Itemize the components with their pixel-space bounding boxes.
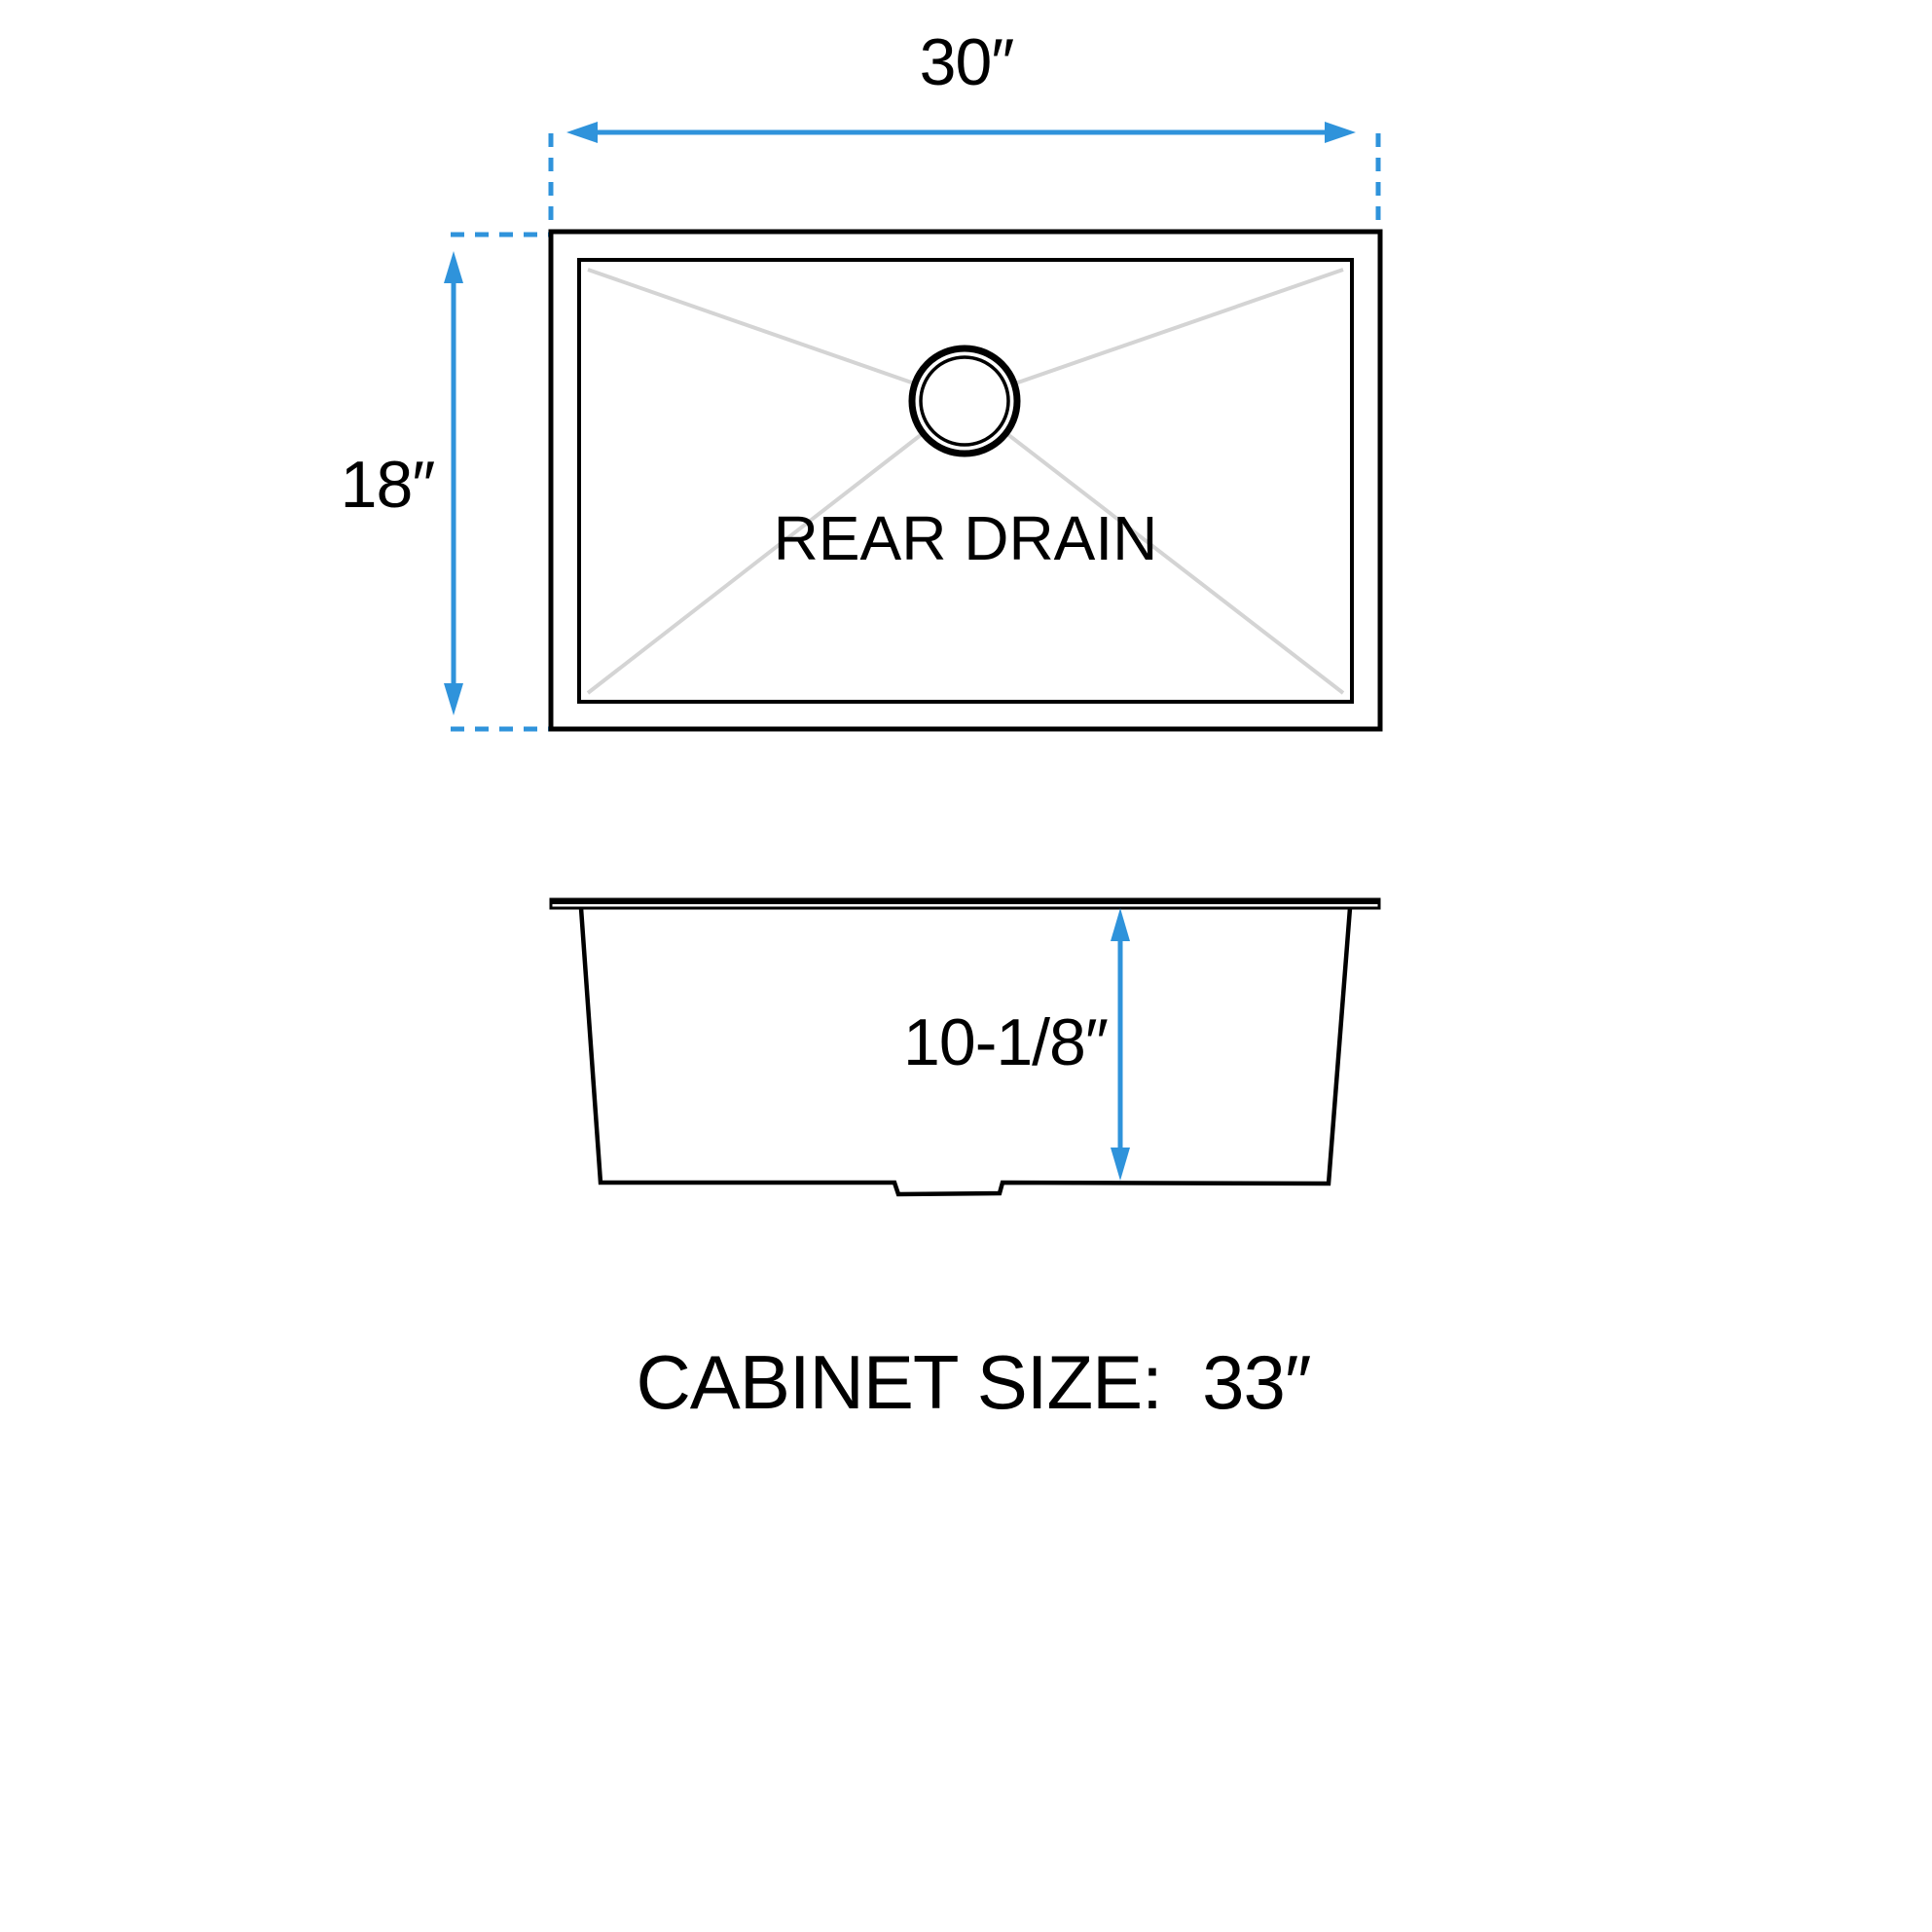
width-dimension-label: 30″: [920, 29, 1014, 95]
height-dimension-arrow: [1111, 908, 1130, 1181]
depth-arrowhead-top-icon: [444, 251, 463, 283]
sink-spec-diagram: 30″ 18″ REAR DRAIN 10-1/8″ CABINET SIZE:…: [0, 0, 1932, 1932]
rear-drain-label: REAR DRAIN: [774, 507, 1158, 569]
width-dimension-arrow: [566, 122, 1356, 143]
width-arrowhead-right-icon: [1325, 122, 1356, 143]
height-arrowhead-top-icon: [1111, 908, 1130, 941]
width-arrowhead-left-icon: [566, 122, 598, 143]
diagram-drawing: [0, 0, 1932, 1932]
depth-dimension-label: 18″: [341, 452, 435, 518]
height-dimension-label: 10-1/8″: [903, 1009, 1108, 1075]
cabinet-size-caption: CABINET SIZE: 33″: [636, 1344, 1310, 1420]
depth-dimension-arrow: [444, 251, 463, 715]
depth-extension-lines: [451, 235, 551, 729]
height-arrowhead-bottom-icon: [1111, 1148, 1130, 1181]
drain-outer-circle: [912, 348, 1017, 454]
width-extension-lines: [551, 133, 1378, 232]
depth-arrowhead-bottom-icon: [444, 683, 463, 715]
top-view-outer-rim: [551, 232, 1380, 729]
sink-top-view: [551, 232, 1380, 729]
